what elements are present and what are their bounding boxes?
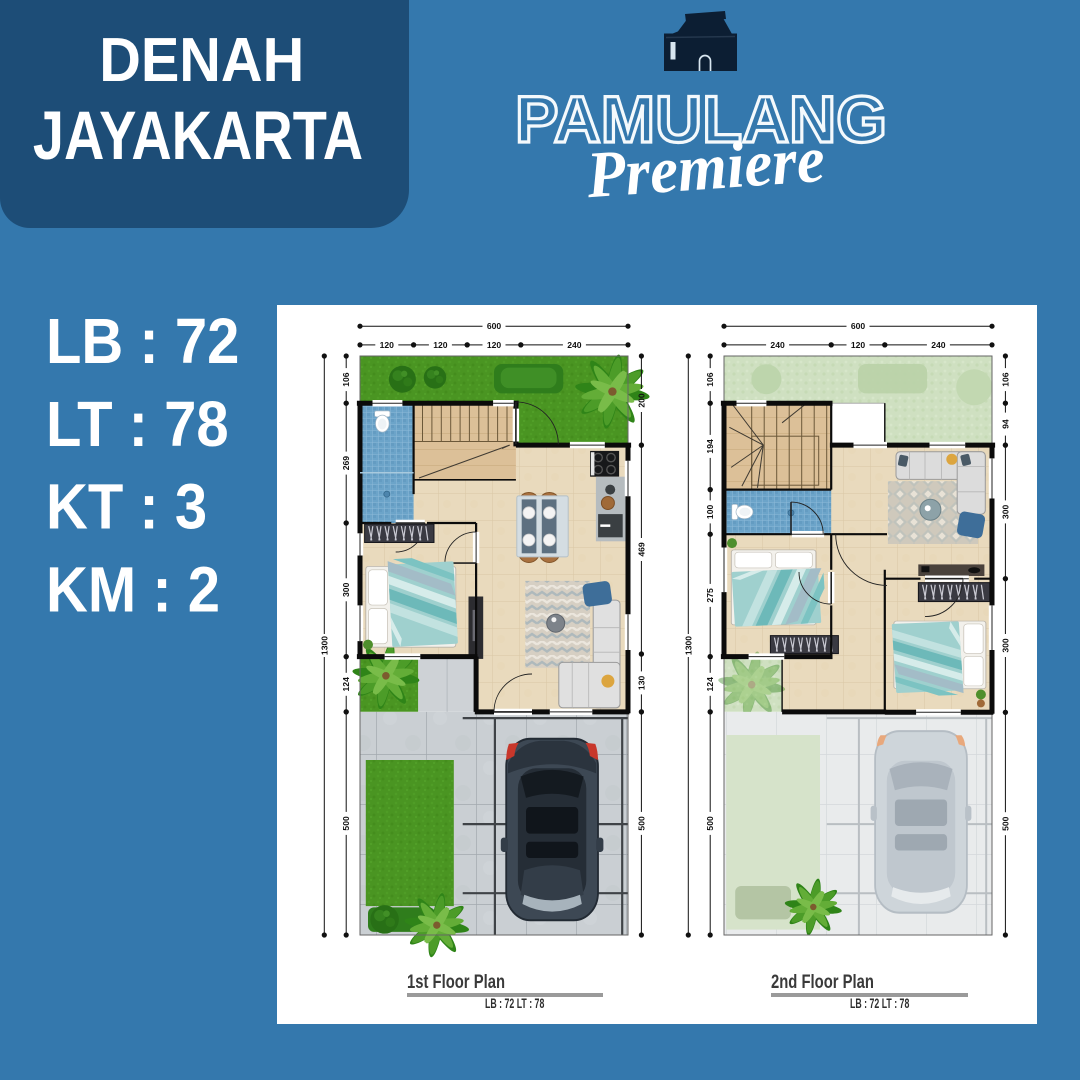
svg-text:200: 200 bbox=[636, 393, 646, 408]
svg-text:600: 600 bbox=[487, 321, 502, 331]
svg-text:130: 130 bbox=[636, 676, 646, 691]
svg-text:124: 124 bbox=[341, 677, 351, 692]
svg-text:194: 194 bbox=[705, 439, 715, 454]
svg-text:300: 300 bbox=[1000, 638, 1010, 653]
svg-text:275: 275 bbox=[705, 588, 715, 603]
svg-text:500: 500 bbox=[636, 816, 646, 831]
svg-text:120: 120 bbox=[487, 340, 502, 350]
svg-text:500: 500 bbox=[705, 816, 715, 831]
svg-text:Premiere: Premiere bbox=[584, 123, 827, 212]
svg-text:120: 120 bbox=[433, 340, 448, 350]
svg-text:300: 300 bbox=[1000, 505, 1010, 520]
svg-text:240: 240 bbox=[931, 340, 946, 350]
svg-text:106: 106 bbox=[1000, 372, 1010, 387]
svg-text:106: 106 bbox=[341, 372, 351, 387]
svg-text:300: 300 bbox=[341, 582, 351, 597]
svg-text:106: 106 bbox=[705, 372, 715, 387]
svg-text:500: 500 bbox=[341, 816, 351, 831]
svg-text:1300: 1300 bbox=[319, 636, 329, 655]
svg-text:1300: 1300 bbox=[683, 636, 693, 655]
svg-text:240: 240 bbox=[567, 340, 582, 350]
svg-text:600: 600 bbox=[851, 321, 866, 331]
svg-text:240: 240 bbox=[770, 340, 785, 350]
svg-text:120: 120 bbox=[380, 340, 395, 350]
svg-text:269: 269 bbox=[341, 456, 351, 471]
svg-text:500: 500 bbox=[1000, 816, 1010, 831]
svg-text:120: 120 bbox=[851, 340, 866, 350]
svg-text:94: 94 bbox=[1000, 419, 1010, 429]
svg-text:100: 100 bbox=[705, 505, 715, 520]
svg-text:124: 124 bbox=[705, 677, 715, 692]
svg-text:469: 469 bbox=[636, 542, 646, 557]
